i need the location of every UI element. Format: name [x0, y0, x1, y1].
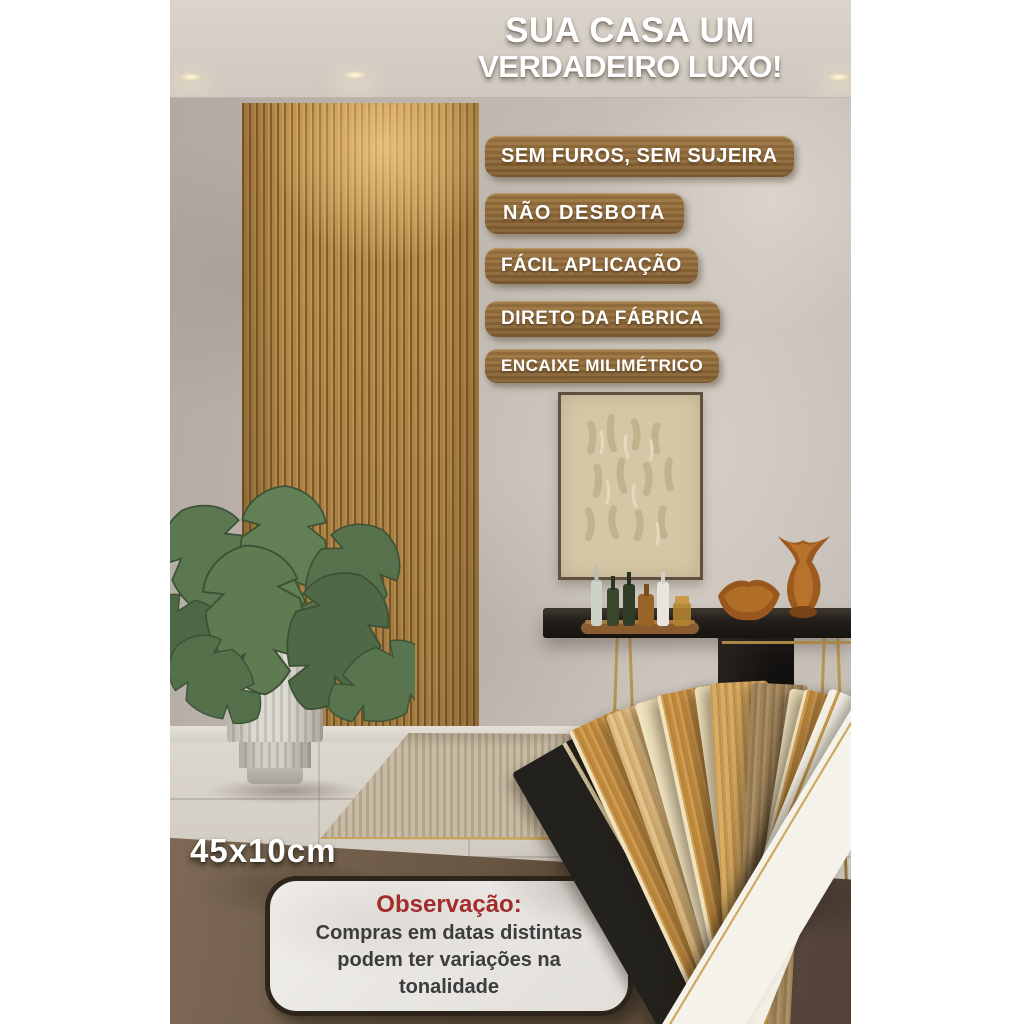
monstera-plant: [170, 470, 415, 800]
bar-bottles-tray: [575, 550, 710, 642]
note-line: tonalidade: [270, 974, 628, 1001]
note-line: podem ter variações na: [270, 947, 628, 974]
feature-badge-no-holes: SEM FUROS, SEM SUJEIRA: [485, 136, 794, 177]
size-label: 45x10cm: [190, 832, 336, 870]
amber-glass-vase: [772, 534, 834, 624]
headline-line2: VERDADEIRO LUXO!: [380, 50, 851, 84]
marketing-image: 45x10cm Observação: Compras em datas dis…: [0, 0, 1024, 1024]
feature-badge-easy-apply: FÁCIL APLICAÇÃO: [485, 248, 698, 284]
headline: SUA CASA UM VERDADEIRO LUXO!: [380, 12, 851, 84]
feature-badge-fit: ENCAIXE MILIMÉTRICO: [485, 349, 719, 383]
ceiling-light-icon: [342, 70, 368, 80]
bottle: [591, 566, 691, 626]
interior-photo: 45x10cm Observação: Compras em datas dis…: [170, 0, 851, 1024]
feature-badge-factory: DIRETO DA FÁBRICA: [485, 301, 720, 337]
table-brass-frame: [722, 641, 851, 644]
ceiling-light-icon: [178, 72, 204, 82]
feature-badge-no-fade: NÃO DESBOTA: [485, 193, 684, 234]
headline-line1: SUA CASA UM: [380, 12, 851, 50]
